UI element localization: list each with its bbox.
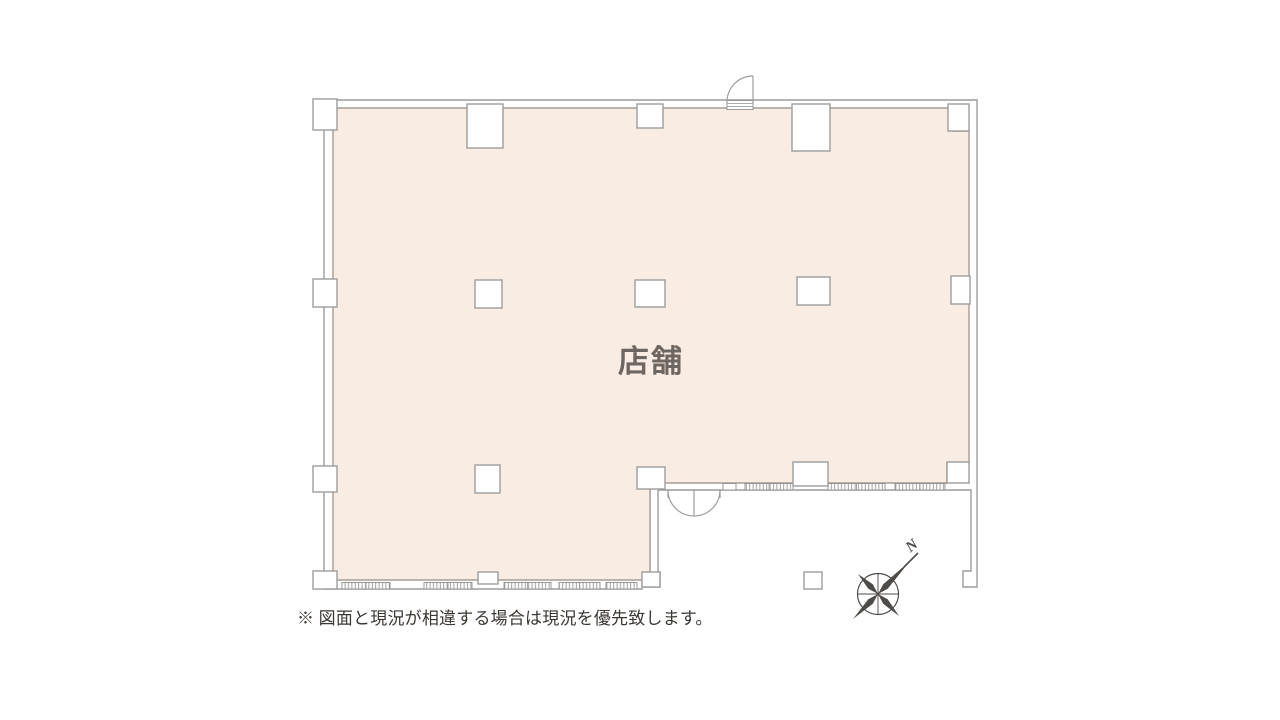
door-threshold — [727, 101, 753, 110]
room-label: 店舗 — [591, 336, 711, 381]
compass-rose — [853, 553, 918, 619]
compass-point-nw — [858, 574, 878, 594]
double-door-bottom — [668, 489, 720, 516]
pillar — [313, 466, 337, 492]
door-swing-arc — [727, 76, 753, 102]
window-segment — [606, 583, 637, 590]
pillar — [951, 276, 970, 304]
door-swing-arc — [694, 490, 720, 516]
window-segment — [723, 484, 736, 491]
pillar — [637, 467, 665, 489]
pillar — [804, 572, 822, 589]
pillar — [797, 277, 830, 305]
pillar — [792, 104, 830, 151]
pillar — [475, 280, 502, 308]
pillar — [313, 571, 337, 589]
compass-point-sw — [853, 594, 878, 619]
pillar — [947, 462, 969, 483]
pillar — [793, 462, 828, 486]
north-needle — [904, 553, 918, 567]
pillar — [313, 99, 337, 130]
pillar — [475, 465, 500, 493]
pillar — [642, 572, 660, 587]
pillar — [948, 104, 969, 131]
floor-plan-page: 店舗 ※ 図面と現況が相違する場合は現況を優先致します。 N — [0, 0, 1280, 720]
pillar — [478, 572, 498, 584]
entrance-door-top — [727, 76, 753, 110]
disclaimer-note: ※ 図面と現況が相違する場合は現況を優先致します。 — [297, 604, 713, 629]
pillar — [637, 104, 663, 128]
pillar — [313, 279, 337, 307]
pillar — [635, 280, 665, 307]
door-swing-arc — [668, 490, 694, 516]
pillar — [467, 104, 503, 148]
